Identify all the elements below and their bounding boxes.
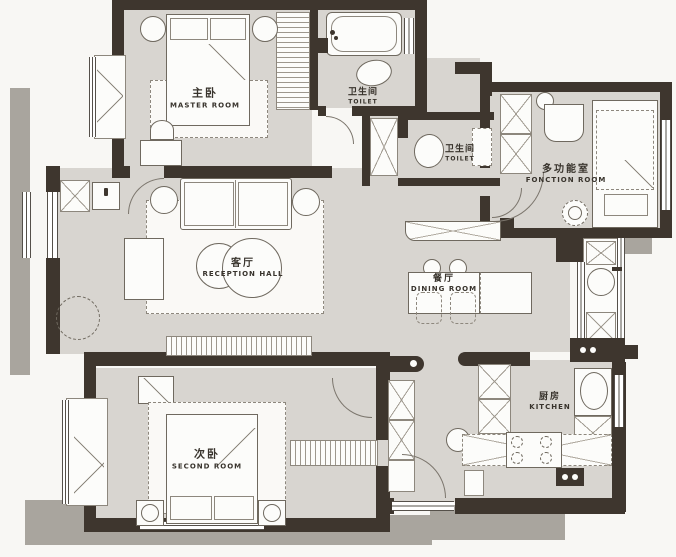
pillow bbox=[214, 496, 254, 520]
master-nightstand-lamp bbox=[140, 16, 166, 42]
room-label-function: 多功能室 FONCTION ROOM bbox=[526, 160, 607, 184]
entry-shoe-cabinet bbox=[388, 380, 415, 420]
pillow bbox=[170, 18, 208, 40]
wall-segment bbox=[398, 112, 408, 138]
room-label-toilet-top: 卫生间 TOILET bbox=[348, 85, 378, 106]
radiator bbox=[404, 18, 414, 54]
sofa-seat bbox=[184, 182, 234, 226]
desk-diagonal bbox=[140, 378, 172, 402]
entry-threshold bbox=[392, 501, 454, 511]
wall-end-dot bbox=[410, 360, 417, 367]
floor-plan: 主卧 MASTER ROOM 卫生间 TOILET 卫生间 TOILET 多功能… bbox=[0, 0, 676, 557]
kitchen-cabinet bbox=[478, 399, 511, 434]
window bbox=[62, 400, 69, 504]
room-label-second: 次卧 SECOND ROOM bbox=[172, 446, 242, 471]
function-desk bbox=[544, 104, 584, 142]
stove-burner bbox=[540, 452, 552, 464]
master-nightstand-lamp bbox=[252, 16, 278, 42]
faucet bbox=[330, 30, 335, 35]
master-chair bbox=[150, 120, 174, 140]
kitchen-sink bbox=[580, 372, 608, 410]
coffee-table bbox=[124, 238, 164, 300]
room-label-dining: 餐厅 DINING ROOM bbox=[411, 271, 477, 293]
wall-segment bbox=[318, 106, 326, 116]
wall-segment bbox=[480, 82, 672, 92]
kitchen-cabinet bbox=[478, 364, 511, 399]
wall-segment bbox=[362, 112, 370, 186]
vanity-cabinet bbox=[60, 180, 90, 212]
kitchen-appliance bbox=[556, 468, 584, 486]
wall-segment bbox=[46, 258, 60, 354]
appliance-dot bbox=[562, 474, 568, 480]
window bbox=[617, 238, 625, 346]
window bbox=[89, 57, 96, 137]
window bbox=[614, 375, 624, 427]
dining-chair bbox=[450, 292, 476, 324]
master-desk bbox=[140, 140, 182, 166]
wall-segment bbox=[455, 498, 625, 514]
room-label-reception: 客厅 RECEPTION HALL bbox=[202, 254, 283, 278]
sofa-seat bbox=[238, 182, 288, 226]
shower-stall bbox=[370, 118, 398, 176]
sink-tap bbox=[104, 188, 108, 196]
wall-segment bbox=[112, 0, 124, 58]
media-cabinet bbox=[166, 336, 312, 356]
console-sideboard bbox=[405, 221, 501, 241]
room-label-master: 主卧 MASTER ROOM bbox=[170, 85, 240, 110]
wall-segment bbox=[46, 166, 60, 192]
pillow bbox=[604, 194, 648, 216]
entry-bench bbox=[290, 440, 378, 466]
window bbox=[47, 192, 58, 258]
kitchen-cabinet-small bbox=[464, 470, 484, 496]
wall-segment bbox=[164, 166, 332, 178]
bathroom-sink bbox=[92, 182, 120, 210]
wall-segment bbox=[84, 366, 96, 400]
function-wardrobe bbox=[500, 94, 532, 134]
wall-segment bbox=[112, 0, 425, 10]
appliance-dot bbox=[572, 474, 578, 480]
balcony-door bbox=[577, 262, 585, 345]
wall-segment bbox=[415, 0, 427, 118]
lounge-chair bbox=[97, 94, 123, 124]
sofa-split bbox=[235, 180, 236, 228]
wall-segment bbox=[398, 178, 500, 186]
stove-burner bbox=[540, 436, 552, 448]
wall-segment bbox=[384, 356, 424, 372]
stove-burner bbox=[511, 452, 523, 464]
stove-burner bbox=[511, 436, 523, 448]
hood-dot bbox=[590, 347, 596, 353]
sofa-side-table bbox=[292, 188, 320, 216]
room-label-toilet-mid: 卫生间 TOILET bbox=[445, 142, 475, 163]
wall-segment bbox=[310, 10, 318, 110]
lounge-chair bbox=[74, 462, 104, 494]
room-label-kitchen: 厨房 KITCHEN bbox=[529, 389, 570, 411]
window bbox=[22, 192, 31, 258]
sofa-side-table bbox=[150, 186, 178, 214]
dining-counter bbox=[480, 272, 532, 314]
dining-chair bbox=[416, 292, 442, 324]
bath-fixture bbox=[315, 38, 328, 53]
floor-plant bbox=[56, 296, 100, 340]
window bbox=[661, 120, 671, 210]
balcony-cabinet bbox=[586, 241, 616, 265]
kitchen-hood-box bbox=[570, 338, 625, 362]
nightstand-lamp bbox=[263, 504, 281, 522]
master-wardrobe bbox=[276, 12, 310, 110]
faucet bbox=[334, 36, 338, 40]
bathtub-inner bbox=[331, 16, 397, 52]
wall-segment bbox=[612, 267, 622, 271]
bath-door-arc bbox=[326, 116, 354, 144]
hood-dot bbox=[580, 347, 586, 353]
balcony-table bbox=[587, 268, 615, 296]
pillow bbox=[170, 496, 212, 520]
pillow bbox=[210, 18, 246, 40]
nightstand-lamp bbox=[141, 504, 159, 522]
blanket-fold bbox=[624, 160, 654, 188]
floor-lamp-inner bbox=[568, 206, 582, 220]
wall-segment bbox=[112, 166, 130, 178]
blanket-fold bbox=[206, 44, 248, 80]
